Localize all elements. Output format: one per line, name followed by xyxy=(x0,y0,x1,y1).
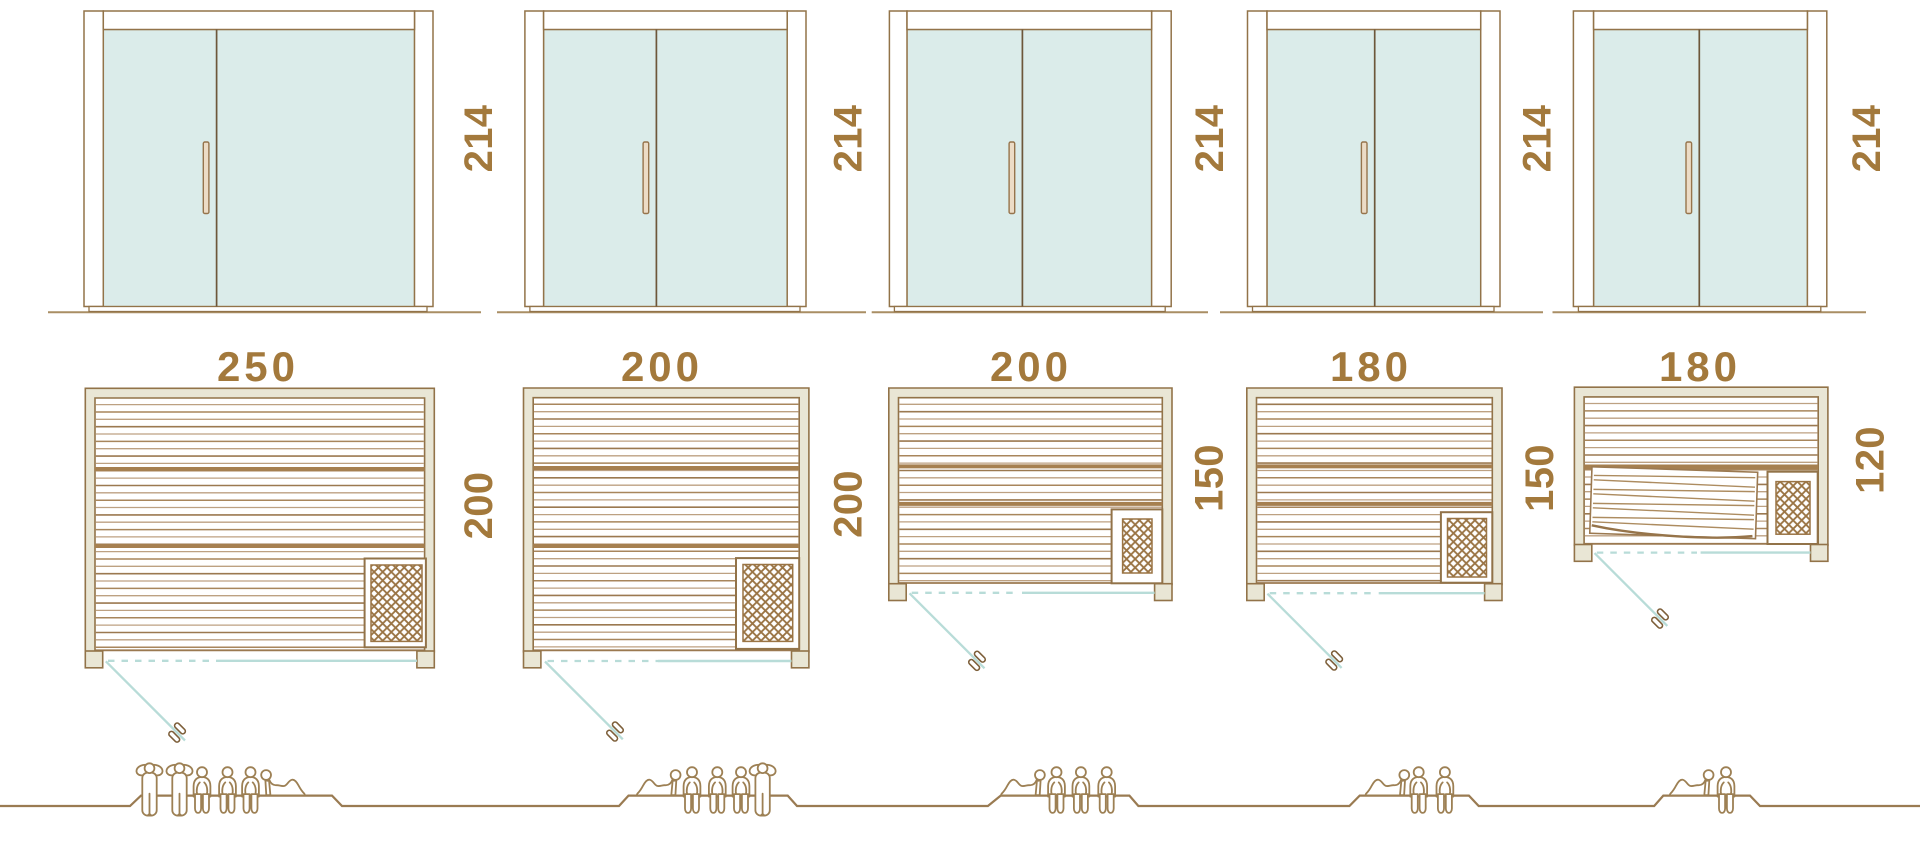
svg-text:120: 120 xyxy=(1849,426,1893,494)
svg-text:150: 150 xyxy=(1518,444,1562,512)
svg-text:200: 200 xyxy=(621,343,703,390)
svg-text:214: 214 xyxy=(1845,104,1889,172)
svg-text:200: 200 xyxy=(990,343,1072,390)
svg-text:180: 180 xyxy=(1330,343,1412,390)
svg-text:200: 200 xyxy=(827,470,871,538)
svg-text:250: 250 xyxy=(217,343,299,390)
svg-text:214: 214 xyxy=(827,104,871,172)
svg-text:214: 214 xyxy=(1516,104,1560,172)
svg-text:214: 214 xyxy=(1188,104,1232,172)
svg-text:214: 214 xyxy=(457,104,501,172)
svg-text:180: 180 xyxy=(1659,343,1741,390)
svg-text:150: 150 xyxy=(1188,444,1232,512)
svg-text:200: 200 xyxy=(457,472,501,540)
